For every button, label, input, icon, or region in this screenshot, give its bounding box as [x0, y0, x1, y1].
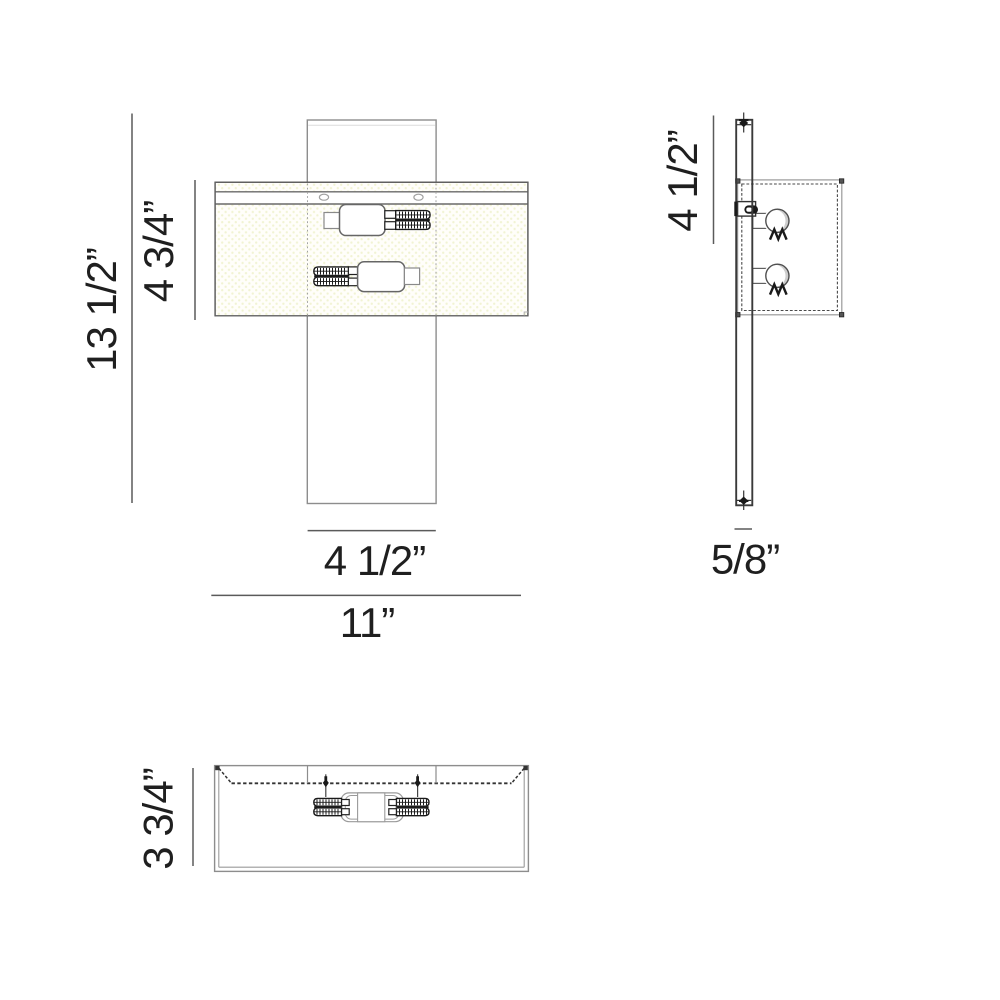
svg-text:4 1/2”: 4 1/2” [324, 537, 425, 584]
svg-text:4 1/2”: 4 1/2” [659, 130, 706, 231]
svg-text:5/8”: 5/8” [711, 536, 779, 583]
svg-text:4 3/4”: 4 3/4” [135, 201, 182, 302]
svg-text:11”: 11” [340, 599, 395, 646]
svg-text:13 1/2”: 13 1/2” [78, 248, 125, 372]
svg-text:3 3/4”: 3 3/4” [135, 768, 182, 869]
